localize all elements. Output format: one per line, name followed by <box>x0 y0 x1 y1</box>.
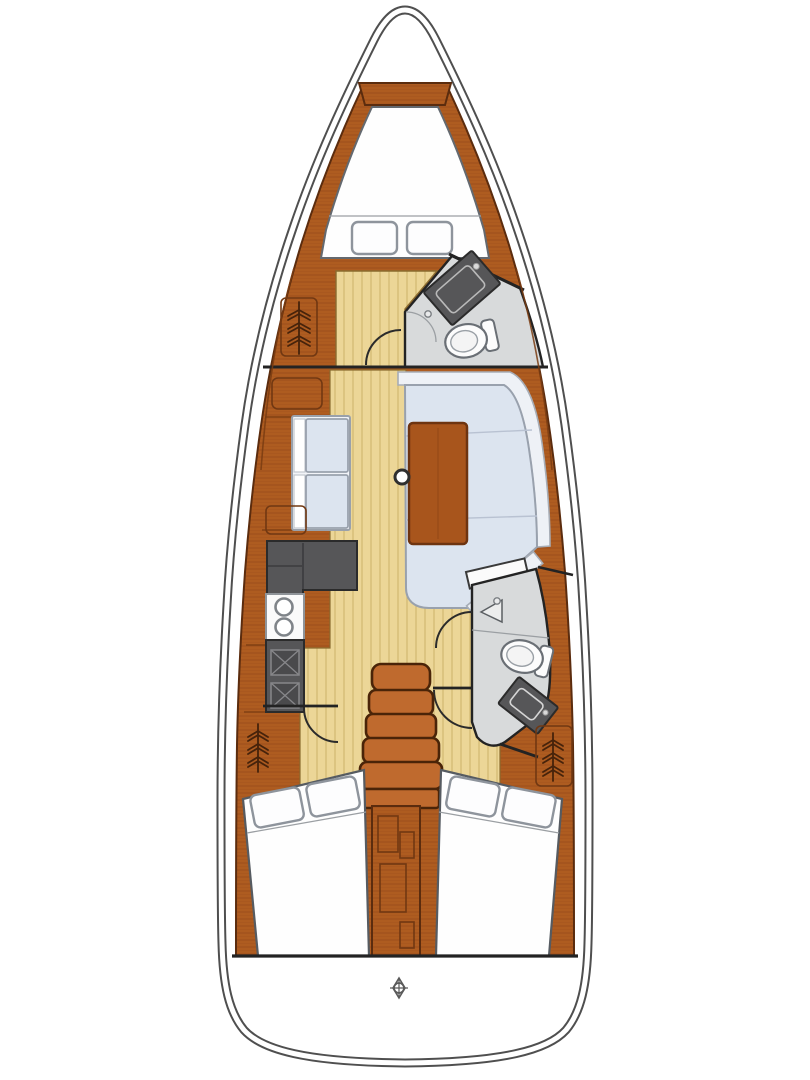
engine-box-divider <box>372 806 420 956</box>
port-settee-cushion <box>306 419 348 472</box>
shower-drain-icon <box>425 311 431 317</box>
step <box>372 664 430 691</box>
shower-drain-icon <box>494 598 500 604</box>
stove-burner-icon <box>271 650 299 675</box>
pillow <box>407 222 452 254</box>
floor-plan-page <box>0 0 810 1080</box>
step <box>363 738 439 763</box>
pillow <box>352 222 397 254</box>
galley-counter <box>267 541 357 594</box>
step <box>366 714 436 739</box>
mast-post <box>395 470 409 484</box>
yacht-floor-plan <box>0 0 810 1080</box>
port-settee-backrest <box>294 419 305 472</box>
anchor-locker-bulkhead <box>359 83 451 105</box>
sink-basin-icon <box>276 599 293 616</box>
stove-burner-icon <box>271 683 299 708</box>
step <box>369 690 433 715</box>
companionway-steps <box>360 664 442 808</box>
port-settee-backrest <box>294 475 305 528</box>
port-settee-cushion <box>306 475 348 528</box>
sink-basin-icon <box>276 619 293 636</box>
step <box>360 762 442 789</box>
